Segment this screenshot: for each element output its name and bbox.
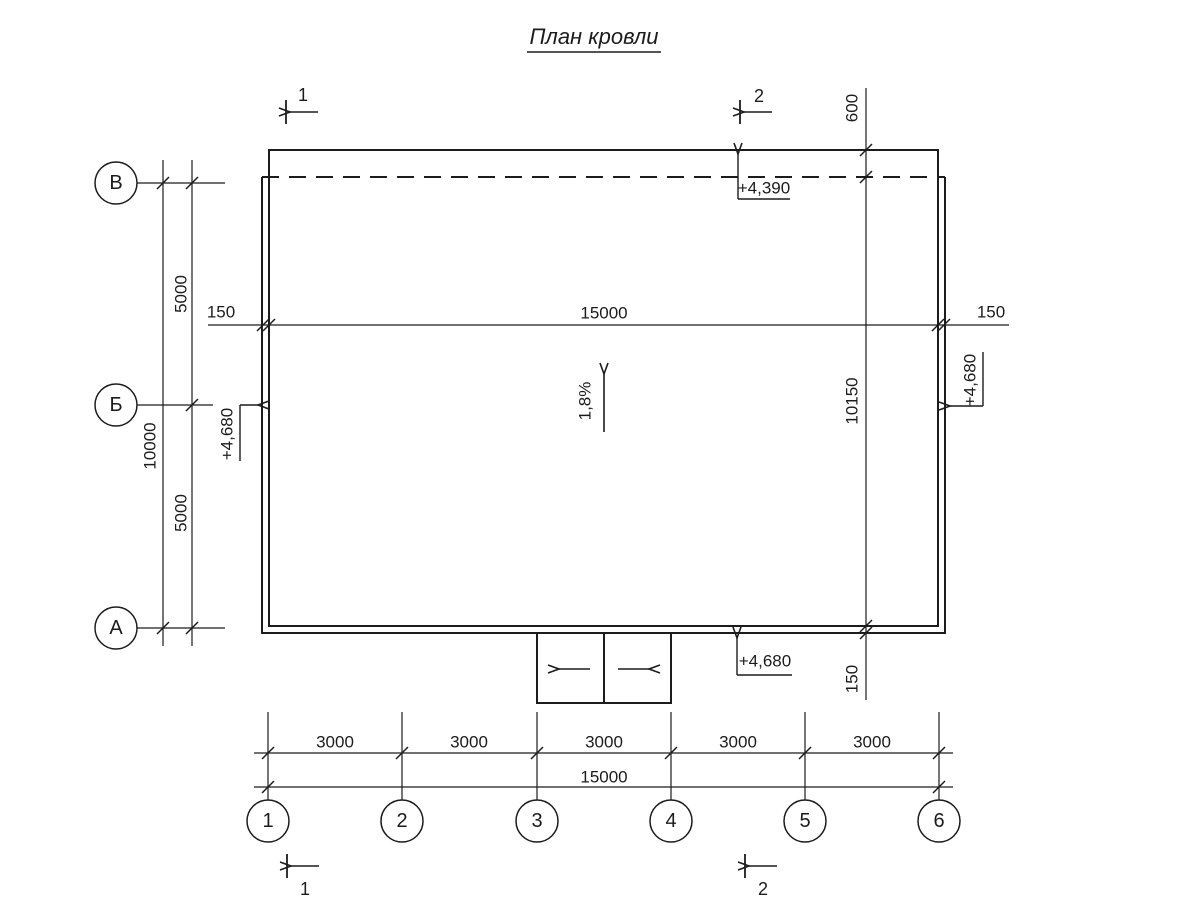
bottom-dimension-block: 3000 3000 3000 3000 3000 15000 — [254, 712, 953, 800]
column-axes — [247, 800, 960, 842]
dim-overhang-right: 150 — [977, 303, 1005, 322]
axis-label-1: 1 — [262, 810, 273, 832]
slope-label: 1,8% — [576, 382, 595, 421]
canopy-box — [537, 633, 671, 703]
elevation-value-right: +4,680 — [961, 354, 980, 406]
drawing-canvas: План кровли 1,8% В Б А 5000 5000 10000 — [0, 0, 1200, 900]
elevation-value-bottom: +4,680 — [739, 652, 791, 671]
axis-label-v: В — [109, 172, 122, 194]
section-number: 2 — [758, 879, 768, 899]
top-span-dimension: 150 15000 150 — [207, 303, 1009, 332]
section-marker-2-bottom: 2 — [745, 854, 777, 899]
left-dimension-block: 5000 5000 10000 — [141, 160, 199, 646]
section-number: 1 — [300, 879, 310, 899]
axis-label-a: А — [109, 617, 123, 639]
axis-label-6: 6 — [933, 810, 944, 832]
dim-bay-1: 3000 — [316, 733, 354, 752]
elevation-mark-left: +4,680 — [218, 405, 259, 461]
elevation-mark-bottom: +4,680 — [737, 638, 792, 675]
axis-label-2: 2 — [396, 810, 407, 832]
dim-left-5000-top: 5000 — [172, 275, 191, 313]
dim-right-600: 600 — [843, 94, 862, 122]
dim-overhang-left: 150 — [207, 303, 235, 322]
axis-label-5: 5 — [799, 810, 810, 832]
page-title: План кровли — [529, 24, 658, 49]
dim-bay-5: 3000 — [853, 733, 891, 752]
drawing-title: План кровли — [527, 24, 661, 52]
dim-bottom-total: 15000 — [580, 768, 627, 787]
roof-plan-drawing: План кровли 1,8% В Б А 5000 5000 10000 — [0, 0, 1200, 900]
dim-left-10000: 10000 — [141, 422, 160, 469]
dim-left-5000-bottom: 5000 — [172, 494, 191, 532]
section-marker-1-bottom: 1 — [287, 854, 319, 899]
dim-right-10150: 10150 — [843, 377, 862, 424]
section-number: 2 — [754, 86, 764, 106]
dim-right-150: 150 — [843, 665, 862, 693]
section-number: 1 — [298, 85, 308, 105]
dim-bay-2: 3000 — [450, 733, 488, 752]
elevation-value-top: +4,390 — [738, 179, 790, 198]
axis-label-4: 4 — [665, 810, 676, 832]
dim-span-15000: 15000 — [580, 304, 627, 323]
right-dimension-block: 600 10150 150 — [843, 88, 873, 700]
section-marker-2-top: 2 — [740, 86, 772, 124]
dim-bay-4: 3000 — [719, 733, 757, 752]
elevation-mark-right: +4,680 — [950, 352, 983, 406]
elevation-value-left: +4,680 — [218, 408, 237, 460]
dim-bay-3: 3000 — [585, 733, 623, 752]
section-marker-1-top: 1 — [286, 85, 318, 124]
axis-label-b: Б — [109, 394, 122, 416]
slope-indicator: 1,8% — [576, 374, 605, 432]
axis-label-3: 3 — [531, 810, 542, 832]
